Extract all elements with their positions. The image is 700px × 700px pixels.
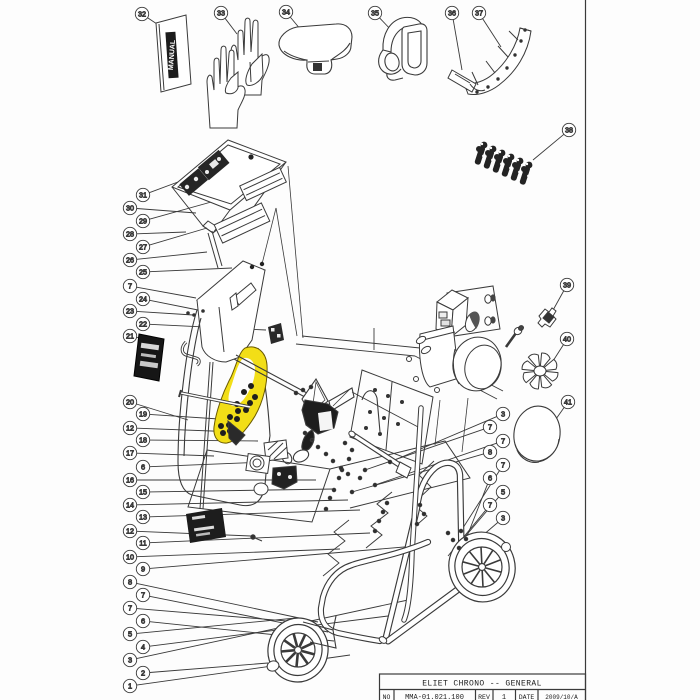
svg-text:7: 7 (501, 461, 505, 470)
svg-text:4: 4 (141, 643, 145, 652)
svg-text:24: 24 (139, 295, 147, 304)
svg-text:14: 14 (126, 501, 134, 510)
svg-text:5: 5 (128, 630, 132, 639)
svg-text:1: 1 (128, 682, 132, 691)
svg-text:31: 31 (139, 191, 147, 200)
svg-text:7: 7 (488, 501, 492, 510)
svg-text:7: 7 (128, 604, 132, 613)
svg-text:30: 30 (126, 204, 134, 213)
svg-text:ELIET CHRONO -- GENERAL: ELIET CHRONO -- GENERAL (422, 680, 542, 689)
svg-text:27: 27 (139, 243, 147, 252)
svg-text:32: 32 (138, 10, 146, 19)
svg-text:26: 26 (126, 256, 134, 265)
svg-text:19: 19 (139, 410, 147, 419)
svg-text:22: 22 (139, 320, 147, 329)
svg-text:10: 10 (126, 553, 134, 562)
svg-text:7: 7 (141, 591, 145, 600)
svg-text:MMA-01.021.100: MMA-01.021.100 (405, 694, 464, 700)
svg-text:3: 3 (501, 514, 505, 523)
svg-text:11: 11 (139, 539, 146, 548)
svg-text:6: 6 (488, 474, 492, 483)
svg-text:12: 12 (126, 424, 134, 433)
svg-text:25: 25 (139, 268, 147, 277)
svg-text:12: 12 (126, 527, 134, 536)
svg-text:5: 5 (501, 488, 505, 497)
svg-text:40: 40 (563, 335, 571, 344)
svg-text:1: 1 (502, 694, 506, 700)
svg-text:15: 15 (139, 488, 147, 497)
svg-text:20: 20 (126, 398, 134, 407)
svg-text:6: 6 (141, 463, 145, 472)
svg-text:33: 33 (217, 9, 225, 18)
svg-text:2: 2 (141, 669, 145, 678)
svg-text:21: 21 (126, 332, 134, 341)
svg-text:DATE: DATE (519, 694, 535, 700)
svg-text:18: 18 (139, 436, 147, 445)
svg-text:23: 23 (126, 307, 134, 316)
svg-text:17: 17 (126, 449, 134, 458)
svg-text:34: 34 (282, 8, 290, 17)
svg-text:29: 29 (139, 217, 147, 226)
svg-text:6: 6 (141, 617, 145, 626)
svg-text:35: 35 (371, 9, 379, 18)
svg-text:9: 9 (141, 565, 145, 574)
svg-text:28: 28 (126, 230, 134, 239)
svg-text:7: 7 (128, 282, 132, 291)
svg-text:39: 39 (563, 281, 571, 290)
svg-text:16: 16 (126, 476, 134, 485)
svg-text:REV: REV (478, 694, 490, 700)
svg-text:36: 36 (448, 9, 456, 18)
svg-text:13: 13 (139, 513, 147, 522)
svg-text:8: 8 (128, 578, 132, 587)
svg-text:38: 38 (565, 126, 573, 135)
svg-text:37: 37 (475, 9, 483, 18)
svg-text:7: 7 (501, 437, 505, 446)
svg-text:3: 3 (501, 410, 505, 419)
svg-text:3: 3 (128, 656, 132, 665)
svg-text:2009/10/A: 2009/10/A (545, 694, 578, 700)
svg-text:7: 7 (488, 423, 492, 432)
svg-text:NO: NO (383, 694, 391, 700)
svg-text:8: 8 (488, 448, 492, 457)
svg-text:41: 41 (564, 398, 572, 407)
